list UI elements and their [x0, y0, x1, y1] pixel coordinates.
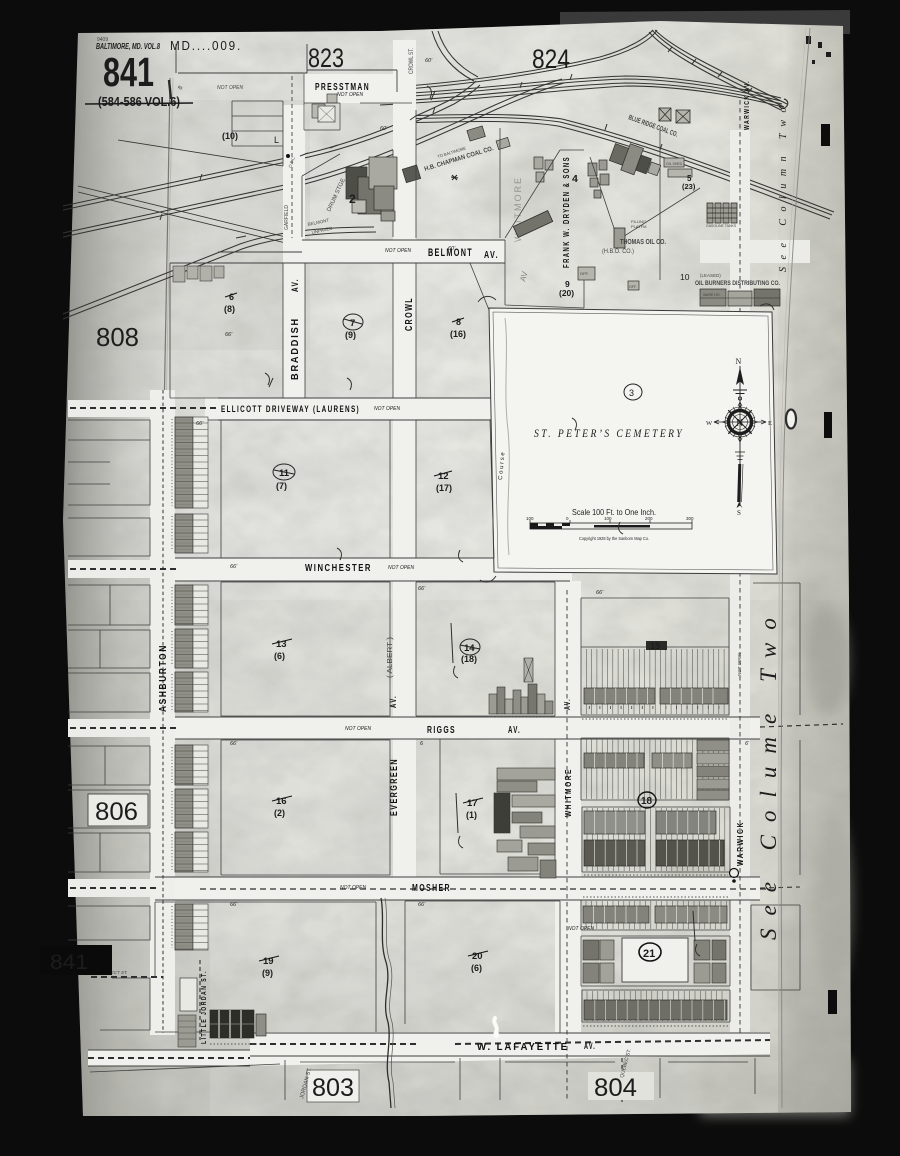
- svg-text:100: 100: [604, 516, 612, 521]
- svg-text:L: L: [274, 135, 279, 145]
- svg-text:(9): (9): [262, 968, 273, 978]
- svg-text:(20): (20): [559, 288, 574, 298]
- svg-text:(7): (7): [276, 481, 287, 491]
- svg-text:NOT OPEN: NOT OPEN: [345, 726, 372, 732]
- svg-text:AV.: AV.: [584, 1041, 596, 1051]
- svg-text:Scale 100 Ft. to One Inch.: Scale 100 Ft. to One Inch.: [572, 507, 656, 517]
- svg-text:(H.B.O. CO.): (H.B.O. CO.): [602, 249, 634, 255]
- svg-text:See Column Two: See Column Two: [778, 100, 789, 272]
- svg-text:2: 2: [349, 192, 356, 206]
- svg-text:(17): (17): [436, 483, 452, 493]
- svg-text:E: E: [768, 420, 772, 427]
- svg-text:CROWL: CROWL: [404, 297, 415, 331]
- svg-text:11: 11: [279, 468, 290, 479]
- svg-text:66': 66': [418, 586, 426, 592]
- svg-text:OIL SHED: OIL SHED: [666, 162, 683, 166]
- svg-text:NOT OPEN: NOT OPEN: [388, 565, 415, 571]
- svg-text:(9): (9): [345, 330, 356, 340]
- svg-text:841: 841: [103, 49, 154, 95]
- svg-text:NOT OPEN: NOT OPEN: [340, 885, 367, 891]
- svg-text:GARFIELD: GARFIELD: [284, 205, 290, 230]
- svg-text:(18): (18): [461, 654, 477, 664]
- svg-text:(1): (1): [466, 810, 477, 820]
- svg-text:N: N: [736, 357, 742, 366]
- svg-text:66': 66': [230, 741, 238, 747]
- svg-text:(16): (16): [450, 329, 466, 339]
- svg-text:MD....009.: MD....009.: [170, 38, 242, 53]
- svg-text:808: 808: [96, 322, 139, 352]
- svg-text:ELLICOTT DRIVEWAY (LAURENS): ELLICOTT DRIVEWAY (LAURENS): [221, 404, 360, 415]
- svg-text:66': 66': [230, 902, 238, 908]
- svg-text:8: 8: [456, 317, 461, 327]
- svg-text:See Colume Two: See Colume Two: [756, 605, 781, 940]
- svg-text:823: 823: [308, 43, 344, 73]
- svg-text:66': 66': [418, 902, 426, 908]
- svg-text:RIGGS: RIGGS: [427, 725, 456, 736]
- svg-text:CROWL ST.: CROWL ST.: [408, 48, 415, 74]
- svg-text:10: 10: [680, 272, 690, 282]
- svg-text:(584-586 VOL.6): (584-586 VOL.6): [98, 94, 180, 109]
- svg-text:100: 100: [526, 516, 534, 521]
- svg-text:AV.: AV.: [290, 278, 300, 292]
- svg-text:806: 806: [95, 798, 138, 826]
- svg-text:PLATFM: PLATFM: [631, 224, 646, 229]
- svg-text:824: 824: [532, 44, 570, 74]
- svg-text:4: 4: [572, 173, 578, 185]
- svg-text:ASHBURTON: ASHBURTON: [158, 644, 169, 712]
- svg-text:804: 804: [594, 1074, 637, 1102]
- svg-text:300: 300: [686, 516, 694, 521]
- svg-text:W. LAFAYETTE: W. LAFAYETTE: [477, 1042, 569, 1053]
- svg-text:21: 21: [643, 948, 655, 960]
- svg-text:66': 66': [196, 421, 204, 427]
- svg-text:841: 841: [50, 951, 88, 974]
- svg-text:(23): (23): [682, 182, 696, 191]
- svg-text:LITTLE JORDAN ST.: LITTLE JORDAN ST.: [201, 970, 208, 1044]
- svg-text:66': 66': [230, 564, 238, 570]
- svg-text:NOT OPEN: NOT OPEN: [737, 653, 742, 676]
- svg-text:AV.: AV.: [563, 698, 572, 710]
- svg-text:NOT OPEN: NOT OPEN: [217, 85, 244, 91]
- svg-text:N: N: [736, 418, 744, 429]
- svg-text:7: 7: [350, 318, 355, 329]
- svg-text:WARWICK AV.: WARWICK AV.: [742, 80, 751, 130]
- svg-text:(6): (6): [471, 963, 482, 973]
- svg-text:WARWICK: WARWICK: [735, 821, 745, 866]
- svg-text:(6): (6): [274, 651, 285, 661]
- svg-text:(LEASED): (LEASED): [700, 273, 721, 278]
- svg-text:( ALBERT ): ( ALBERT ): [387, 637, 394, 678]
- svg-text:OFF.: OFF.: [629, 285, 637, 289]
- svg-text:803: 803: [312, 1074, 354, 1102]
- svg-text:EVERGREEN: EVERGREEN: [389, 758, 400, 816]
- svg-text:S: S: [737, 509, 741, 517]
- svg-text:15: 15: [650, 641, 660, 651]
- svg-text:(8): (8): [224, 304, 235, 314]
- svg-text:NOT OPEN: NOT OPEN: [374, 406, 401, 412]
- svg-text:AV.: AV.: [484, 250, 499, 261]
- svg-text:OIL BURNERS DISTRIBUTING CO.: OIL BURNERS DISTRIBUTING CO.: [695, 280, 780, 287]
- svg-text:WINCHESTER: WINCHESTER: [305, 563, 372, 574]
- svg-text:Copyright 1928 by the Sanborn: Copyright 1928 by the Sanborn Map Co.: [579, 536, 649, 541]
- svg-text:14: 14: [464, 643, 475, 654]
- svg-text:3: 3: [629, 388, 634, 398]
- svg-text:60': 60': [448, 246, 456, 252]
- svg-text:NOT OPEN: NOT OPEN: [385, 248, 412, 254]
- svg-text:FRANK W. DRYDEN & SONS: FRANK W. DRYDEN & SONS: [562, 156, 571, 268]
- svg-text:60': 60': [380, 126, 388, 132]
- svg-text:(2): (2): [274, 808, 285, 818]
- svg-text:(10): (10): [222, 131, 238, 141]
- svg-text:200: 200: [645, 516, 653, 521]
- svg-text:BRADDISH: BRADDISH: [290, 317, 301, 380]
- svg-text:66': 66': [596, 590, 604, 596]
- svg-text:GASOLINE TANKS: GASOLINE TANKS: [706, 224, 737, 228]
- svg-text:66': 66': [225, 332, 233, 338]
- svg-text:THOMAS OIL CO.: THOMAS OIL CO.: [620, 239, 666, 246]
- svg-text:AV.: AV.: [508, 725, 521, 736]
- svg-text:WHITMORE: WHITMORE: [563, 768, 573, 817]
- svg-text:ST. PETER’S CEMETERY: ST. PETER’S CEMETERY: [534, 426, 684, 440]
- svg-text:MOSHER: MOSHER: [412, 883, 451, 894]
- svg-text:OFF.: OFF.: [580, 271, 589, 276]
- svg-text:AV.: AV.: [388, 695, 398, 708]
- svg-text:18: 18: [641, 796, 653, 807]
- svg-text:NOT OPEN: NOT OPEN: [337, 92, 364, 98]
- svg-text:W: W: [706, 420, 713, 427]
- svg-text:6: 6: [229, 292, 234, 302]
- svg-text:WARE HO.: WARE HO.: [703, 293, 721, 297]
- svg-text:60': 60': [425, 58, 433, 64]
